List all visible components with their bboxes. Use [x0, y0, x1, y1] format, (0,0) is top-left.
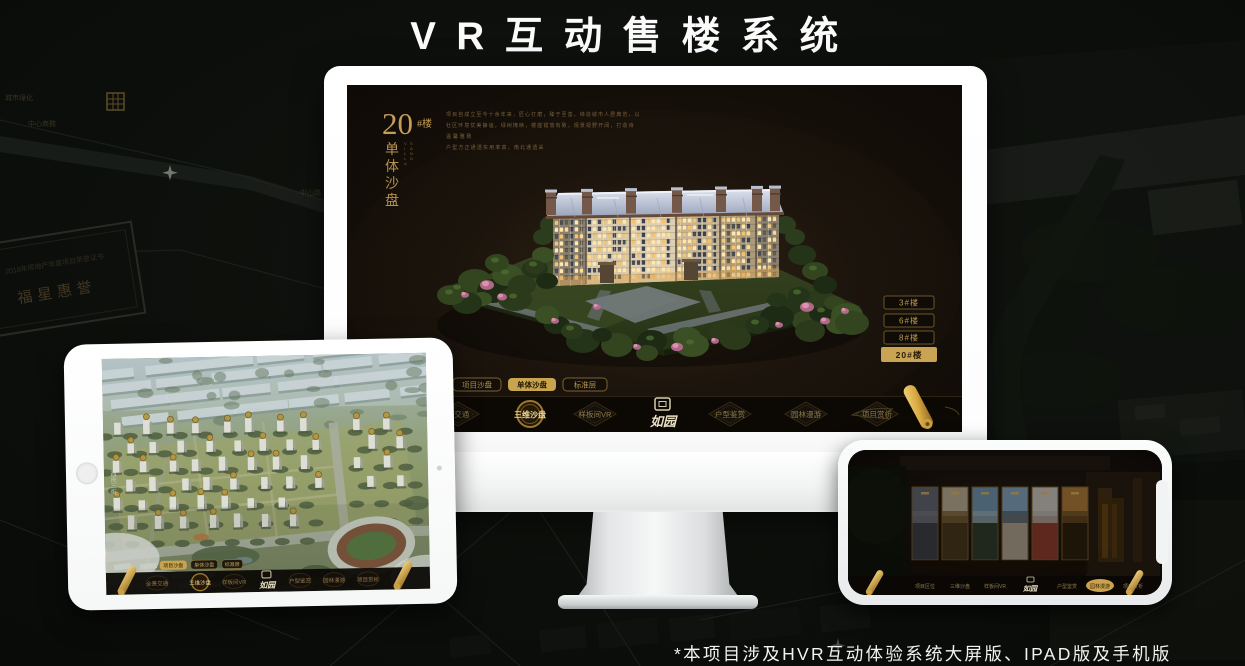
svg-text:单: 单 [385, 142, 399, 158]
svg-text:项目区位: 项目区位 [915, 583, 935, 590]
svg-text:如园: 如园 [1023, 584, 1039, 593]
svg-text:三维沙盘: 三维沙盘 [514, 410, 546, 420]
svg-text:中山路: 中山路 [300, 188, 321, 197]
svg-text:盘: 盘 [385, 192, 399, 209]
svg-text:D: D [410, 156, 413, 161]
svg-text:8#楼: 8#楼 [899, 333, 919, 343]
svg-text:中心商務: 中心商務 [28, 119, 56, 128]
svg-text:标准层: 标准层 [225, 561, 240, 568]
svg-text:沙: 沙 [385, 177, 399, 192]
svg-text:6#楼: 6#楼 [899, 316, 919, 326]
svg-text:项目沙盘: 项目沙盘 [163, 562, 183, 569]
svg-text:户型鉴赏: 户型鉴赏 [1057, 583, 1077, 590]
svg-text:园林漫游: 园林漫游 [791, 409, 821, 419]
svg-text:样板间VR: 样板间VR [579, 409, 613, 419]
svg-text:标准层: 标准层 [574, 380, 597, 390]
svg-text:单体沙盘: 单体沙盘 [194, 561, 214, 568]
svg-text:3#楼: 3#楼 [899, 298, 919, 308]
svg-text:A: A [404, 161, 407, 166]
svg-text:户型鉴赏: 户型鉴赏 [715, 409, 745, 419]
svg-text:项目沙盘: 项目沙盘 [462, 380, 492, 390]
svg-text:项目自成立至今十余年来，匠心打磨，臻于至善，缔造城市人居典范: 项目自成立至今十余年来，匠心打磨，臻于至善，缔造城市人居典范，以 [446, 111, 640, 118]
svg-text:如园: 如园 [259, 581, 277, 590]
svg-text:如园: 如园 [650, 414, 678, 429]
svg-text:三维沙盘: 三维沙盘 [950, 583, 970, 590]
svg-text:园林漫游: 园林漫游 [1090, 583, 1110, 590]
svg-text:20: 20 [382, 106, 413, 141]
svg-text:城市綠化: 城市綠化 [5, 93, 33, 102]
svg-text:#楼: #楼 [417, 117, 432, 130]
svg-text:温馨雅致: 温馨雅致 [446, 133, 472, 140]
svg-text:体: 体 [385, 159, 399, 175]
svg-text:社区环境优美静谧，绿树掩映，楼座错落有致，观景视野开阔，打造: 社区环境优美静谧，绿树掩映，楼座错落有致，观景视野开阔，打造诗 [446, 122, 634, 129]
svg-text:单体沙盘: 单体沙盘 [517, 380, 547, 390]
svg-text:户型方正通透实用率高，南北通透采: 户型方正通透实用率高，南北通透采 [446, 144, 544, 151]
svg-text:20#楼: 20#楼 [896, 350, 923, 360]
svg-text:样板间VR: 样板间VR [984, 583, 1006, 590]
